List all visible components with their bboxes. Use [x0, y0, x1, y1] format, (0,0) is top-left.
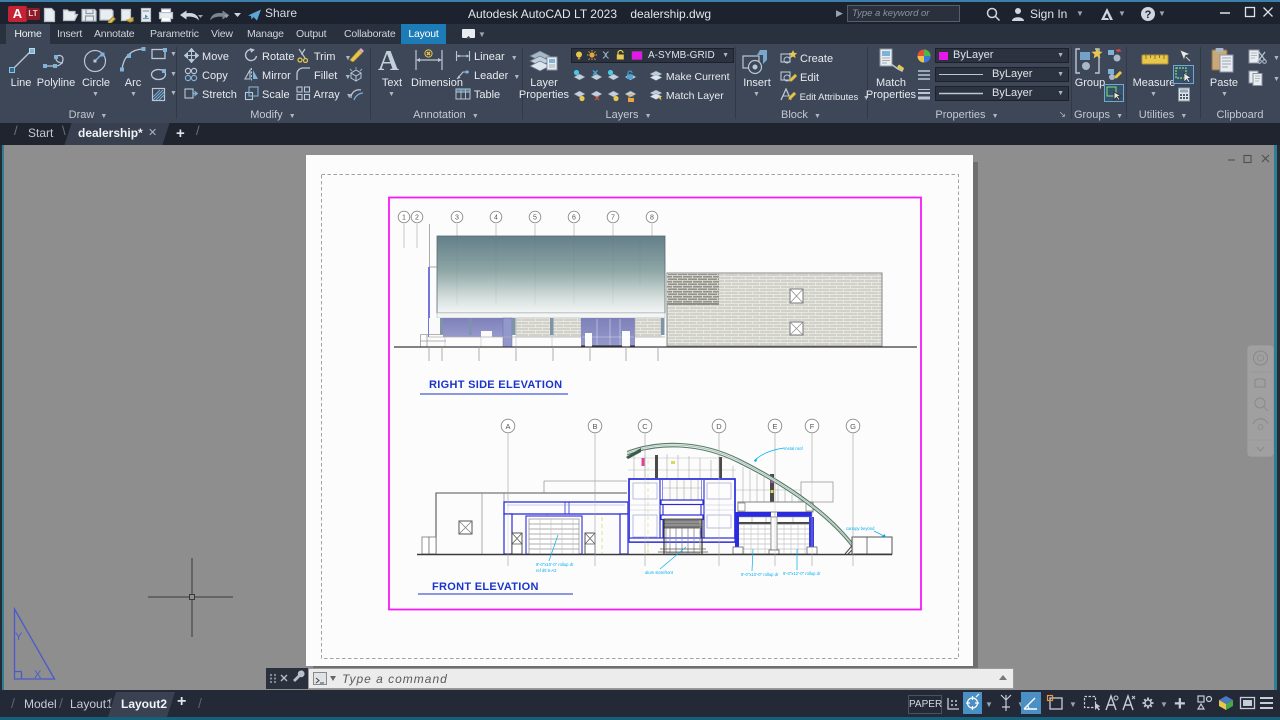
svg-text:?: ?	[1145, 9, 1152, 21]
svg-text:E: E	[772, 422, 777, 431]
svg-text:4: 4	[494, 215, 498, 222]
svg-text:7: 7	[611, 215, 615, 222]
svg-text:A: A	[505, 422, 510, 431]
svg-text:5: 5	[533, 215, 537, 222]
svg-text:X: X	[34, 669, 42, 681]
svg-text:alum storefront: alum storefront	[645, 570, 674, 575]
svg-text:8: 8	[650, 215, 654, 222]
svg-text:metal roof: metal roof	[784, 446, 803, 451]
svg-text:B: B	[592, 422, 597, 431]
svg-text:D: D	[716, 422, 722, 431]
svg-text:9'-0"x10'-0" rollup dr: 9'-0"x10'-0" rollup dr	[741, 572, 779, 577]
svg-text:RIGHT SIDE ELEVATION: RIGHT SIDE ELEVATION	[429, 379, 562, 391]
svg-text:2: 2	[415, 215, 419, 222]
svg-text:F: F	[810, 422, 815, 431]
svg-text:canopy beyond: canopy beyond	[846, 526, 875, 531]
svg-text:9'-0"x10'-0" rollup dr: 9'-0"x10'-0" rollup dr	[536, 562, 574, 567]
svg-text:G: G	[850, 422, 856, 431]
svg-text:Y: Y	[15, 631, 23, 643]
svg-text:C: C	[642, 422, 648, 431]
svg-text:ref dtl 5-A2: ref dtl 5-A2	[536, 568, 557, 573]
svg-text:1: 1	[402, 215, 406, 222]
svg-text:3: 3	[455, 215, 459, 222]
svg-text:FRONT ELEVATION: FRONT ELEVATION	[432, 581, 539, 593]
svg-text:9'-0"x12'-0" rollup dr: 9'-0"x12'-0" rollup dr	[783, 571, 821, 576]
svg-text:6: 6	[572, 215, 576, 222]
